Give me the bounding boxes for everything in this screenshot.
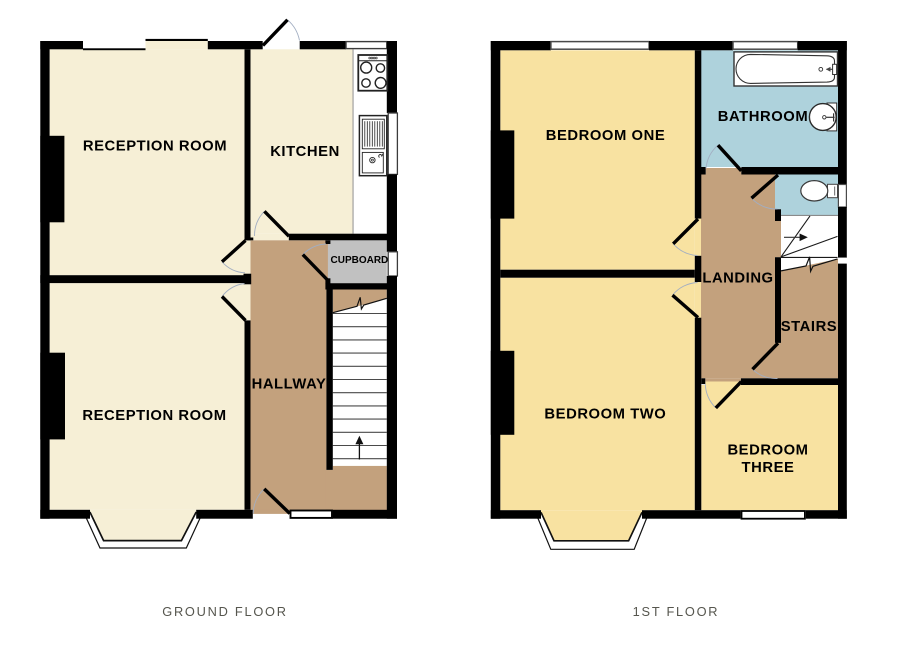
svg-text:BEDROOM TWO: BEDROOM TWO bbox=[544, 407, 666, 423]
svg-text:BEDROOM: BEDROOM bbox=[727, 443, 808, 459]
svg-text:BEDROOM ONE: BEDROOM ONE bbox=[546, 128, 666, 144]
svg-text:CUPBOARD: CUPBOARD bbox=[331, 255, 389, 266]
svg-text:1ST FLOOR: 1ST FLOOR bbox=[633, 604, 720, 619]
svg-text:BATHROOM: BATHROOM bbox=[718, 109, 808, 125]
svg-text:GROUND FLOOR: GROUND FLOOR bbox=[162, 604, 288, 619]
svg-text:THREE: THREE bbox=[742, 460, 795, 476]
svg-text:LANDING: LANDING bbox=[702, 270, 773, 286]
svg-text:KITCHEN: KITCHEN bbox=[270, 144, 340, 160]
svg-text:HALLWAY: HALLWAY bbox=[252, 376, 327, 392]
svg-text:RECEPTION ROOM: RECEPTION ROOM bbox=[82, 408, 226, 424]
svg-text:STAIRS: STAIRS bbox=[781, 319, 837, 335]
svg-text:RECEPTION ROOM: RECEPTION ROOM bbox=[83, 138, 227, 154]
